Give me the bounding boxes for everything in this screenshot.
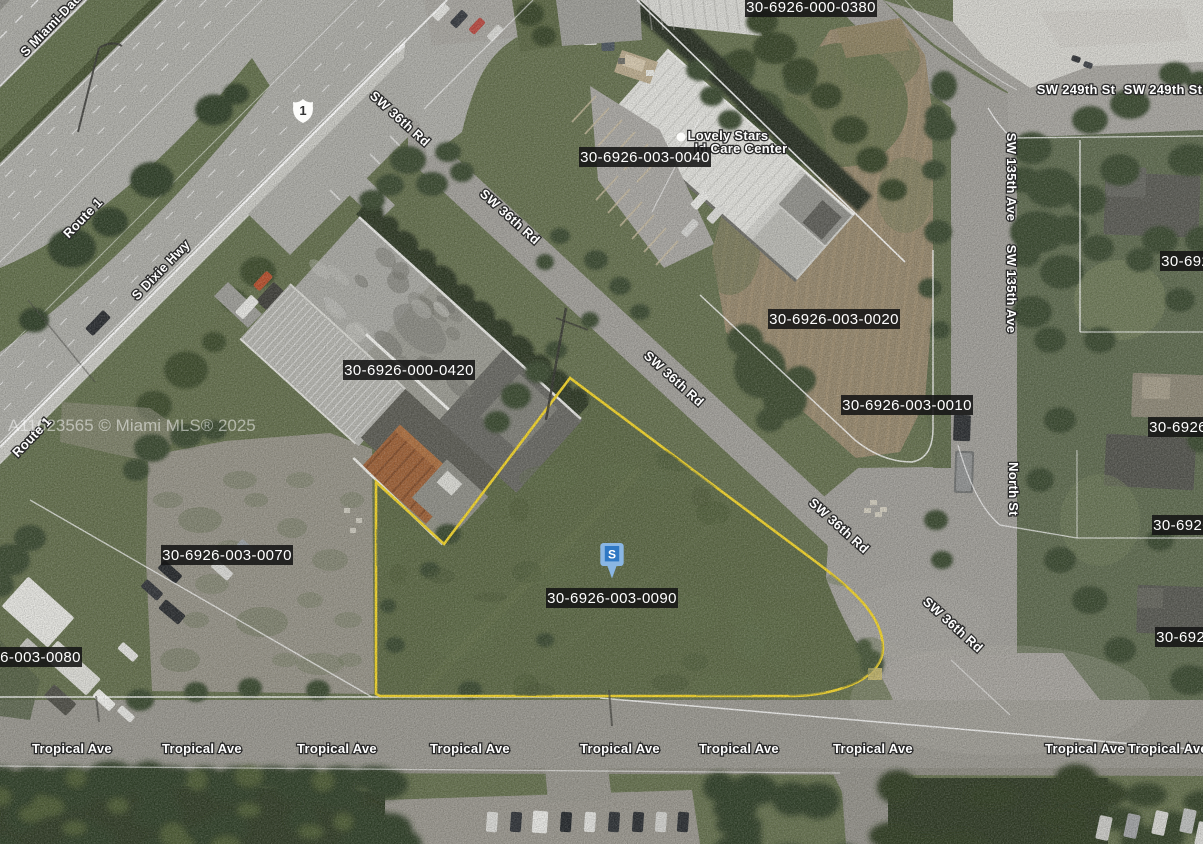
svg-text:30-6926-003-0080: 30-6926-003-0080 — [0, 649, 81, 666]
svg-text:Tropical Ave: Tropical Ave — [833, 741, 913, 756]
svg-text:30-6926-000-0420: 30-6926-000-0420 — [344, 362, 474, 379]
svg-text:Tropical Ave: Tropical Ave — [430, 741, 510, 756]
svg-text:SW 135th Ave: SW 135th Ave — [1004, 245, 1019, 334]
svg-text:Tropical Ave: Tropical Ave — [162, 741, 242, 756]
svg-text:30-6926-003-0070: 30-6926-003-0070 — [162, 547, 292, 564]
svg-text:30-6926-000-0500: 30-6926-000-0500 — [1161, 253, 1203, 270]
svg-text:SW 249th St: SW 249th St — [1124, 82, 1203, 97]
svg-text:30-6926-000-0520: 30-6926-000-0520 — [1153, 517, 1203, 534]
svg-text:SW 249th St: SW 249th St — [1037, 82, 1116, 97]
svg-text:S: S — [608, 548, 616, 562]
svg-text:30-6926-003-0040: 30-6926-003-0040 — [580, 149, 710, 166]
svg-text:30-6926-003-0010: 30-6926-003-0010 — [842, 397, 972, 414]
svg-text:Tropical Ave: Tropical Ave — [297, 741, 377, 756]
svg-text:1: 1 — [299, 103, 306, 118]
svg-text:Tropical Ave: Tropical Ave — [32, 741, 112, 756]
svg-text:Tropical Ave: Tropical Ave — [1128, 741, 1203, 756]
svg-text:30-6926-000-0380: 30-6926-000-0380 — [746, 0, 876, 16]
svg-text:Tropical Ave: Tropical Ave — [699, 741, 779, 756]
svg-text:30-6926-003-0020: 30-6926-003-0020 — [769, 311, 899, 328]
svg-text:A11623565 © Miami MLS® 2025: A11623565 © Miami MLS® 2025 — [8, 416, 256, 435]
svg-text:30-6926-000-0510: 30-6926-000-0510 — [1149, 419, 1203, 436]
svg-text:Tropical Ave: Tropical Ave — [580, 741, 660, 756]
svg-text:North St: North St — [1006, 462, 1021, 516]
svg-text:SW 135th Ave: SW 135th Ave — [1004, 133, 1019, 222]
svg-text:30-6926-000-0530: 30-6926-000-0530 — [1156, 629, 1203, 646]
svg-text:30-6926-003-0090: 30-6926-003-0090 — [547, 590, 677, 607]
svg-text:Tropical Ave: Tropical Ave — [1045, 741, 1125, 756]
